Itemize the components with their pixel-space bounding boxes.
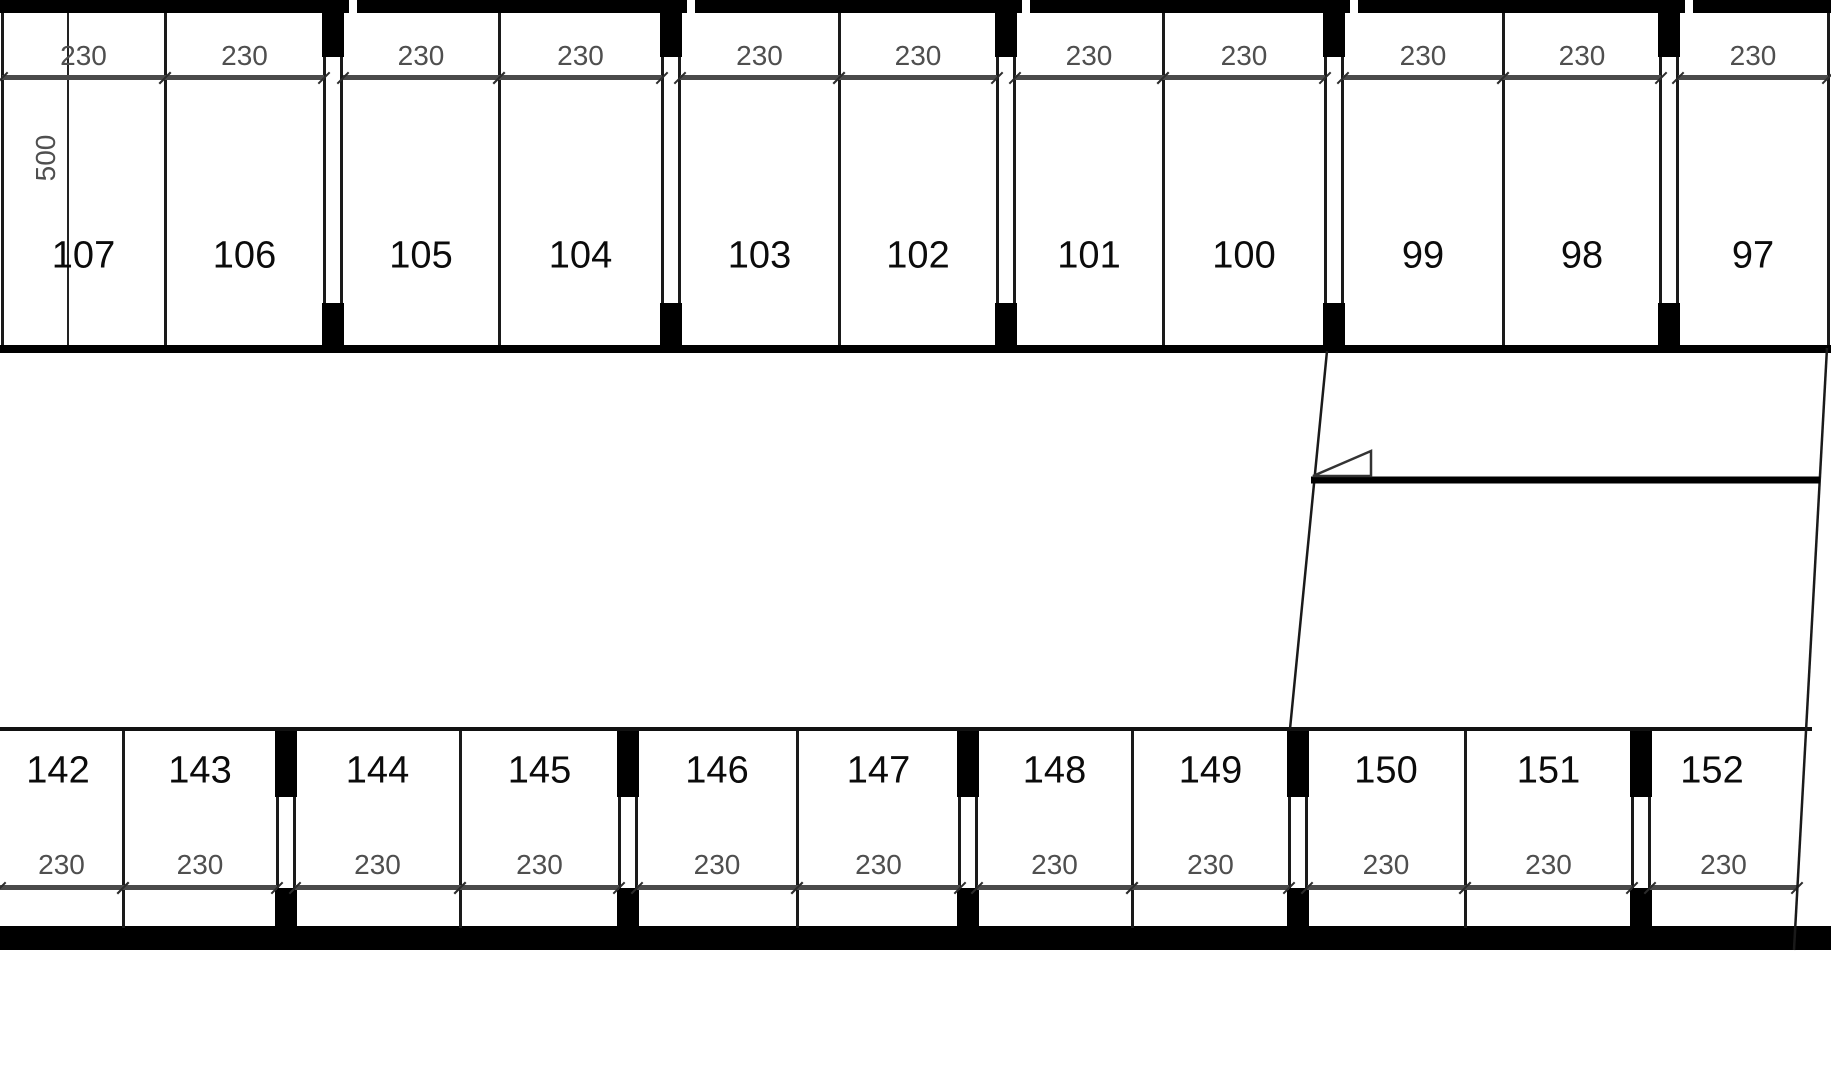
floor-plan: 500 107230106230105230104230103230102230… xyxy=(0,0,1831,1080)
ramp-slope-arrow xyxy=(1313,451,1371,476)
annotation-overlay xyxy=(0,0,1831,1080)
drive-edge-diagonal-right xyxy=(1794,348,1827,950)
drive-edge-diagonal-left xyxy=(1290,351,1327,729)
